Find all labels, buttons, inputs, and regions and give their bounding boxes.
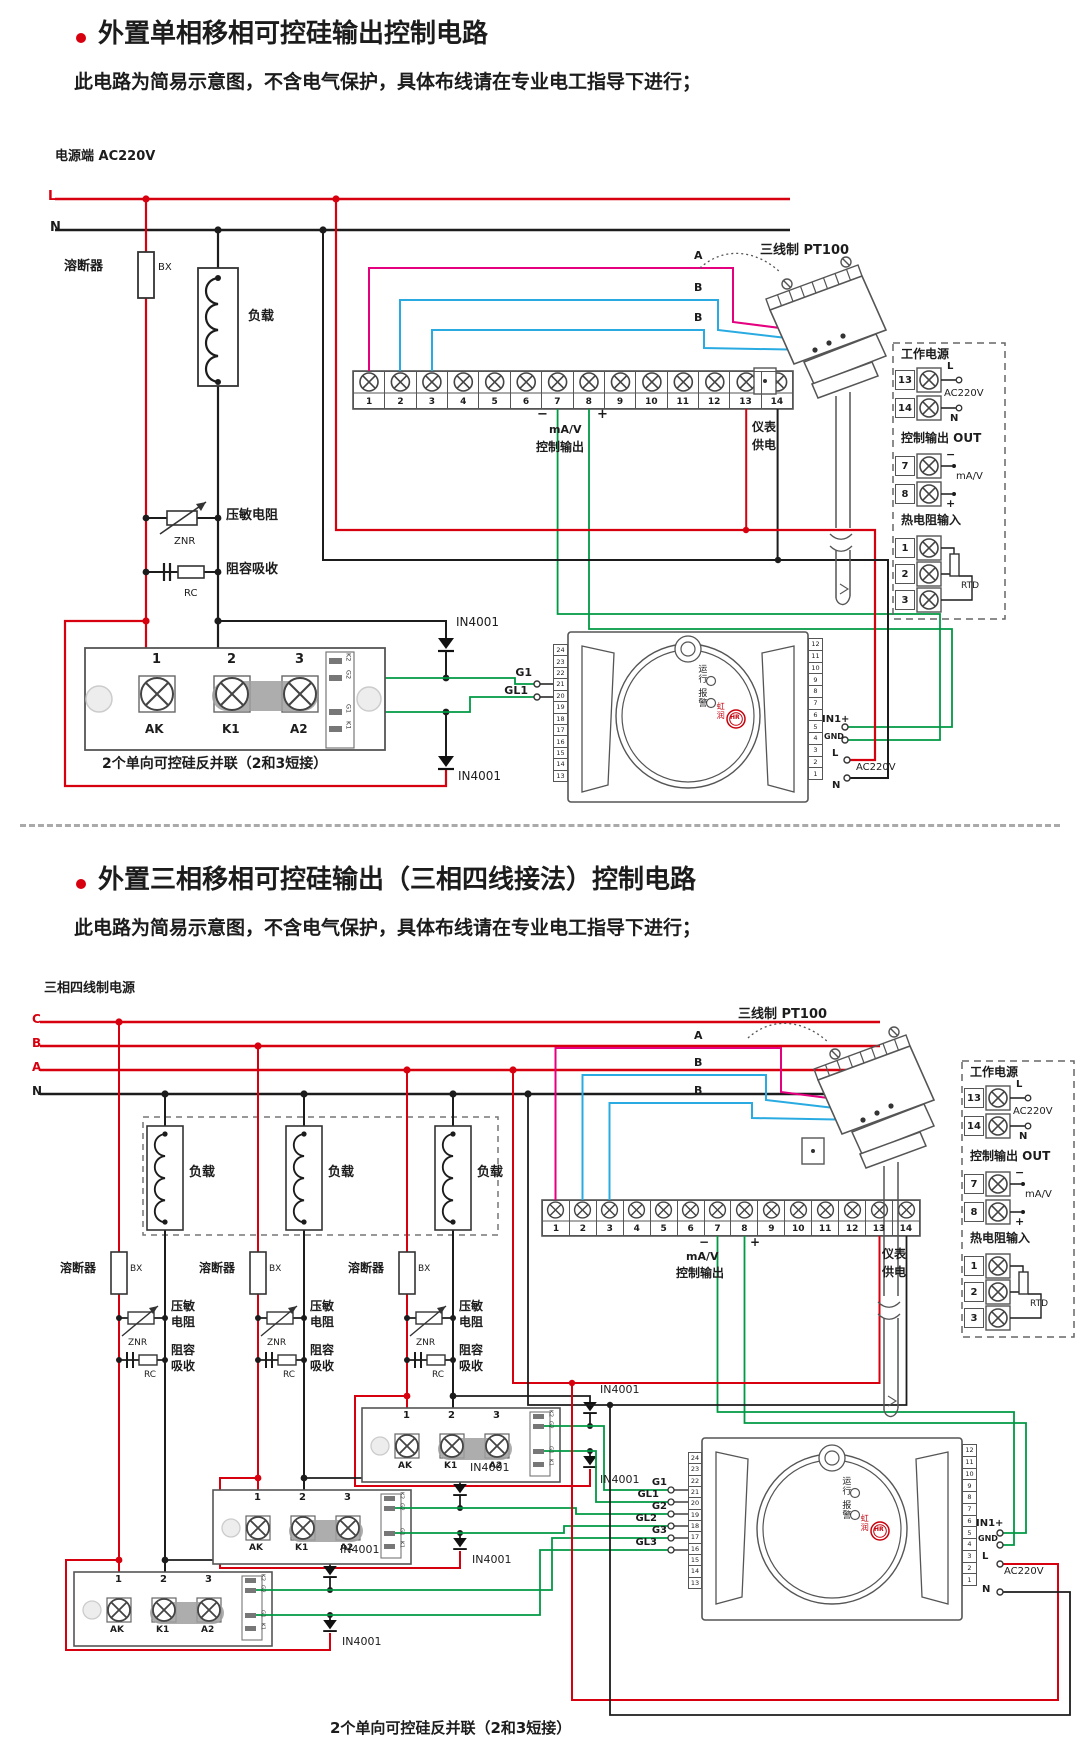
terminal-number: 4 <box>447 372 478 408</box>
load-label: 负载 <box>248 310 274 325</box>
scr1-terminal-1: 1 <box>152 653 161 668</box>
meter2-right-terminals: 121110987654321 <box>962 1444 977 1586</box>
pt100-2-title: 三线制 PT100 <box>738 1008 827 1023</box>
panel2-mav: mA/V <box>1025 1189 1052 1201</box>
scrB-ak: AK <box>249 1543 263 1553</box>
scr1-side-k2: K2 <box>344 653 351 661</box>
znr2-label2a: 压敏 <box>310 1300 334 1314</box>
terminal-number: 8 <box>730 1201 757 1235</box>
terminal-number: 11 <box>667 372 698 408</box>
terminal-strip-1: 1234567891011121314 <box>353 371 793 409</box>
terminal-number: 21 <box>554 678 567 689</box>
strip2-ctrl-output: 控制输出 <box>676 1267 724 1281</box>
scrA-side-k2: K2 <box>547 1410 553 1417</box>
panel1-n7: 7 <box>895 456 915 476</box>
scrA-side-g2: G2 <box>547 1421 553 1429</box>
terminal-number: 20 <box>554 690 567 701</box>
meter1-n-label: N <box>832 780 840 792</box>
varistor-label: 压敏电阻 <box>226 509 278 524</box>
panel1-plus: + <box>946 498 955 511</box>
meter2-gnd-label: GND <box>978 1534 998 1543</box>
scrC-ak: AK <box>110 1625 124 1635</box>
rc2-code-3: RC <box>432 1370 444 1380</box>
terminal-number: 2 <box>384 372 415 408</box>
panel1-ac: AC220V <box>944 388 984 400</box>
terminal-number: 6 <box>809 709 822 721</box>
gate-wire-g1: G1 <box>492 667 532 680</box>
scr2-caption: 2个单向可控硅反并联（2和3短接） <box>330 1720 571 1737</box>
terminal-number: 13 <box>689 1577 701 1588</box>
terminal-number: 6 <box>510 372 541 408</box>
znr2-code-1: ZNR <box>128 1338 147 1348</box>
section2-subtitle: 此电路为简易示意图，不含电气保护，具体布线请在专业电工指导下进行； <box>74 918 701 940</box>
scr1-a2: A2 <box>290 723 308 737</box>
terminal-number: 2 <box>569 1201 596 1235</box>
scrB-terminal-1: 1 <box>254 1492 261 1504</box>
terminal-number: 10 <box>635 372 666 408</box>
scrB-side-k1: K1 <box>398 1541 404 1548</box>
fuse-label: 溶断器 <box>64 260 103 275</box>
meter1-run-label: 运行 <box>696 664 706 684</box>
meter1-left-terminals: 242322212019181716151413 <box>553 644 568 782</box>
gate-gl1: GL1 <box>619 1489 659 1501</box>
meter-supply-label-1: 仪表 <box>752 421 776 435</box>
pt100-title: 三线制 PT100 <box>760 244 849 259</box>
terminal-number: 11 <box>963 1456 976 1468</box>
scrC-side-g2: G2 <box>259 1585 265 1593</box>
scrB-k1: K1 <box>295 1543 308 1553</box>
line-a-label: A <box>32 1061 41 1075</box>
scrB-terminal-3: 3 <box>344 1492 351 1504</box>
pt100-wire-b1: B <box>694 282 702 295</box>
scrB-side-g2: G2 <box>398 1503 404 1511</box>
schematic-page: 外置单相移相可控硅输出控制电路 此电路为简易示意图，不含电气保护，具体布线请在专… <box>0 0 1080 1762</box>
panel2-n2: 2 <box>964 1282 984 1302</box>
scrA-terminal-3: 3 <box>493 1410 500 1422</box>
terminal-number: 18 <box>689 1520 701 1531</box>
diode1-label: IN4001 <box>456 616 499 630</box>
scrA-terminal-2: 2 <box>448 1410 455 1422</box>
terminal-number: 7 <box>704 1201 731 1235</box>
pt100-wire-b2: B <box>694 312 702 325</box>
meter2-alarm-label: 报警 <box>840 1500 850 1520</box>
terminal-number: 15 <box>554 747 567 758</box>
threephase-power-label: 三相四线制电源 <box>44 982 135 997</box>
scrA-terminal-1: 1 <box>403 1410 410 1422</box>
fuse2-label-2: 溶断器 <box>199 1262 235 1276</box>
meter1-ac220v: AC220V <box>856 762 896 774</box>
fuse2-label-1: 溶断器 <box>60 1262 96 1276</box>
scr1-side-k1: K1 <box>344 721 351 729</box>
terminal-number: 9 <box>963 1479 976 1491</box>
terminal-number: 3 <box>596 1201 623 1235</box>
diodeB1-label: IN4001 <box>470 1462 509 1475</box>
power-source-label: 电源端 AC220V <box>55 150 155 165</box>
section-divider <box>20 824 1060 827</box>
scr1-k1: K1 <box>222 723 240 737</box>
terminal-number: 1 <box>354 372 384 408</box>
terminal-number: 6 <box>963 1515 976 1527</box>
terminal-number: 7 <box>963 1503 976 1515</box>
terminal-number: 3 <box>809 744 822 756</box>
znr2-label3b: 电阻 <box>459 1316 483 1330</box>
terminal-number: 5 <box>963 1526 976 1538</box>
meter2-supply-label-1: 仪表 <box>882 1248 906 1262</box>
panel1-l: L <box>947 361 953 373</box>
terminal-number: 12 <box>698 372 729 408</box>
rc2-label3a: 阻容 <box>459 1344 483 1358</box>
strip1-minus: − <box>537 408 548 423</box>
scrC-side-g1: G1 <box>259 1610 265 1618</box>
scrA-side-k1: K1 <box>547 1459 553 1466</box>
diodeC2-label: IN4001 <box>342 1636 381 1649</box>
terminal-number: 24 <box>554 645 567 655</box>
panel2-out-title: 控制输出 OUT <box>970 1150 1050 1164</box>
meter1-in1-label: IN1+ <box>822 714 849 726</box>
scr1-terminal-2: 2 <box>227 653 236 668</box>
meter1-gnd-label: GND <box>824 732 844 741</box>
rc2-label2b: 吸收 <box>310 1360 334 1374</box>
terminal-number: 7 <box>809 697 822 709</box>
terminal-number: 6 <box>677 1201 704 1235</box>
strip1-mav: mA/V <box>549 424 582 437</box>
line-c-label: C <box>32 1013 41 1027</box>
terminal-number: 24 <box>689 1453 701 1463</box>
panel2-ac: AC220V <box>1013 1106 1053 1118</box>
terminal-number: 8 <box>963 1491 976 1503</box>
terminal-strip-2: 1234567891011121314 <box>542 1200 920 1236</box>
scr1-ak: AK <box>145 723 164 737</box>
terminal-number: 4 <box>623 1201 650 1235</box>
terminal-number: 9 <box>604 372 635 408</box>
line-l-label: L <box>48 190 56 205</box>
terminal-number: 1 <box>543 1201 569 1235</box>
panel2-minus: − <box>1015 1167 1024 1180</box>
title-bullet <box>76 33 86 43</box>
panel1-mav: mA/V <box>956 471 983 483</box>
meter-supply-label-2: 供电 <box>752 439 776 453</box>
panel1-n3: 3 <box>895 590 915 610</box>
terminal-number: 14 <box>554 758 567 769</box>
terminal-number: 12 <box>838 1201 865 1235</box>
terminal-number: 14 <box>761 372 792 408</box>
panel2-n14: 14 <box>964 1116 984 1136</box>
panel1-n1: 1 <box>895 538 915 558</box>
terminal-number: 2 <box>963 1562 976 1574</box>
terminal-number: 7 <box>541 372 572 408</box>
meter2-run-label: 运行 <box>840 1476 850 1496</box>
section1-title: 外置单相移相可控硅输出控制电路 <box>98 20 488 50</box>
load2-label-2: 负载 <box>328 1166 354 1181</box>
meter1-l-label: L <box>832 748 838 760</box>
scrC-k1: K1 <box>156 1625 169 1635</box>
gate-g1: G1 <box>627 1477 667 1489</box>
rc2-label1a: 阻容 <box>171 1344 195 1358</box>
terminal-number: 5 <box>650 1201 677 1235</box>
line-n2-label: N <box>32 1085 42 1099</box>
panel2-n7: 7 <box>964 1174 984 1194</box>
znr2-label3a: 压敏 <box>459 1300 483 1314</box>
meter2-logo: HR <box>874 1527 884 1534</box>
panel2-n1: 1 <box>964 1256 984 1276</box>
terminal-number: 9 <box>809 673 822 685</box>
terminal-number: 17 <box>554 724 567 735</box>
pt100-2-wire-a: A <box>694 1030 703 1043</box>
panel1-n2: 2 <box>895 564 915 584</box>
panel2-rtd: RTD <box>1030 1299 1048 1309</box>
znr2-code-3: ZNR <box>416 1338 435 1348</box>
strip2-mav: mA/V <box>686 1251 719 1264</box>
diodeA1-label: IN4001 <box>600 1384 639 1397</box>
section2-title: 外置三相移相可控硅输出（三相四线接法）控制电路 <box>98 866 696 896</box>
panel1-power-title: 工作电源 <box>901 348 949 362</box>
rc-label: 阻容吸收 <box>226 563 278 578</box>
line-b-label: B <box>32 1037 41 1051</box>
scrC-a2: A2 <box>201 1625 214 1635</box>
rc2-label1b: 吸收 <box>171 1360 195 1374</box>
panel1-rtd: RTD <box>961 581 979 591</box>
terminal-number: 14 <box>689 1565 701 1576</box>
terminal-number: 22 <box>689 1475 701 1486</box>
terminal-number: 23 <box>554 655 567 666</box>
scr1-side-g1: G1 <box>344 704 351 713</box>
scr1-terminal-3: 3 <box>295 653 304 668</box>
panel2-plus: + <box>1015 1216 1024 1229</box>
terminal-number: 11 <box>811 1201 838 1235</box>
panel2-n13: 13 <box>964 1088 984 1108</box>
terminal-number: 12 <box>963 1445 976 1456</box>
panel2-power-title: 工作电源 <box>970 1066 1018 1080</box>
fuse2-code-2: BX <box>269 1264 281 1274</box>
scrA-k1: K1 <box>444 1461 457 1471</box>
terminal-number: 1 <box>809 767 822 779</box>
terminal-number: 17 <box>689 1531 701 1542</box>
terminal-number: 18 <box>554 713 567 724</box>
meter1-brand: 虹润 <box>716 702 725 720</box>
scrA-side-g1: G1 <box>547 1446 553 1454</box>
scr1-caption: 2个单向可控硅反并联（2和3短接） <box>102 756 327 772</box>
scrB-side-k2: K2 <box>398 1492 404 1499</box>
meter2-ac220v: AC220V <box>1004 1566 1044 1578</box>
terminal-number: 1 <box>963 1573 976 1585</box>
terminal-number: 14 <box>892 1201 919 1235</box>
terminal-number: 13 <box>729 372 760 408</box>
terminal-number: 8 <box>809 685 822 697</box>
strip1-plus: + <box>597 408 608 423</box>
terminal-number: 9 <box>757 1201 784 1235</box>
meter1-right-terminals: 121110987654321 <box>808 638 823 780</box>
gate-wire-gl1: GL1 <box>488 685 528 698</box>
terminal-number: 15 <box>689 1554 701 1565</box>
strip2-minus: − <box>699 1236 709 1250</box>
rc-code: RC <box>184 588 197 600</box>
fuse2-code-3: BX <box>418 1264 430 1274</box>
meter2-supply-label-2: 供电 <box>882 1266 906 1280</box>
panel2-n: N <box>1019 1131 1027 1143</box>
pt100-2-wire-b1: B <box>694 1057 702 1070</box>
terminal-number: 22 <box>554 667 567 678</box>
scrC-side-k1: K1 <box>259 1623 265 1630</box>
meter1-alarm-label: 报警 <box>696 688 706 708</box>
scrA-ak: AK <box>398 1461 412 1471</box>
rc2-label3b: 吸收 <box>459 1360 483 1374</box>
meter2-brand: 虹润 <box>860 1514 869 1532</box>
terminal-number: 16 <box>554 735 567 746</box>
section1-subtitle: 此电路为简易示意图，不含电气保护，具体布线请在专业电工指导下进行； <box>74 72 701 94</box>
pt100-2-wire-b2: B <box>694 1085 702 1098</box>
diodeC1-label: IN4001 <box>340 1544 379 1557</box>
terminal-number: 8 <box>573 372 604 408</box>
load2-label-1: 负载 <box>189 1166 215 1181</box>
scrB-terminal-2: 2 <box>299 1492 306 1504</box>
panel2-l: L <box>1016 1079 1022 1091</box>
gate-g3: G3 <box>627 1525 667 1537</box>
panel1-n: N <box>950 413 958 425</box>
scrC-terminal-1: 1 <box>115 1574 122 1586</box>
strip1-ctrl-output: 控制输出 <box>536 441 584 455</box>
terminal-number: 19 <box>689 1509 701 1520</box>
rc2-code-1: RC <box>144 1370 156 1380</box>
terminal-number: 23 <box>689 1463 701 1474</box>
terminal-number: 10 <box>963 1468 976 1480</box>
scr1-side-g2: G2 <box>344 670 351 679</box>
terminal-number: 11 <box>809 650 822 662</box>
rc2-code-2: RC <box>283 1370 295 1380</box>
panel1-n14: 14 <box>895 398 915 418</box>
fuse-code: BX <box>158 262 172 274</box>
terminal-number: 21 <box>689 1486 701 1497</box>
panel1-rtd-title: 热电阻输入 <box>901 514 961 528</box>
panel2-n8: 8 <box>964 1202 984 1222</box>
panel1-n8: 8 <box>895 484 915 504</box>
load2-label-3: 负载 <box>477 1166 503 1181</box>
panel1-n13: 13 <box>895 370 915 390</box>
terminal-number: 10 <box>784 1201 811 1235</box>
znr2-code-2: ZNR <box>267 1338 286 1348</box>
line-n-label: N <box>50 221 61 236</box>
scrC-terminal-2: 2 <box>160 1574 167 1586</box>
terminal-number: 10 <box>809 662 822 674</box>
terminal-number: 12 <box>809 639 822 650</box>
terminal-number: 3 <box>963 1550 976 1562</box>
znr2-label1a: 压敏 <box>171 1300 195 1314</box>
rc2-label2a: 阻容 <box>310 1344 334 1358</box>
znr2-label1b: 电阻 <box>171 1316 195 1330</box>
terminal-number: 20 <box>689 1497 701 1508</box>
terminal-number: 16 <box>689 1543 701 1554</box>
fuse2-code-1: BX <box>130 1264 142 1274</box>
terminal-number: 19 <box>554 701 567 712</box>
meter1-logo: HR <box>730 715 740 722</box>
gate-g2: G2 <box>627 1501 667 1513</box>
diodeB2-label: IN4001 <box>472 1554 511 1567</box>
panel2-rtd-title: 热电阻输入 <box>970 1232 1030 1246</box>
gate-gl2: GL2 <box>617 1513 657 1525</box>
terminal-number: 5 <box>478 372 509 408</box>
varistor-code: ZNR <box>174 536 195 548</box>
panel1-out-title: 控制输出 OUT <box>901 432 981 446</box>
pt100-wire-a: A <box>694 250 703 263</box>
fuse2-label-3: 溶断器 <box>348 1262 384 1276</box>
meter2-in1-label: IN1+ <box>976 1518 1003 1530</box>
meter2-n-label: N <box>982 1584 990 1596</box>
gate-gl3: GL3 <box>617 1537 657 1549</box>
title-bullet-2 <box>76 879 86 889</box>
terminal-number: 13 <box>865 1201 892 1235</box>
terminal-number: 3 <box>416 372 447 408</box>
znr2-label2b: 电阻 <box>310 1316 334 1330</box>
meter2-l-label: L <box>982 1551 988 1563</box>
meter2-left-terminals: 242322212019181716151413 <box>688 1452 702 1589</box>
scrB-side-g1: G1 <box>398 1528 404 1536</box>
diode2-label: IN4001 <box>458 770 501 784</box>
scrC-terminal-3: 3 <box>205 1574 212 1586</box>
terminal-number: 2 <box>809 756 822 768</box>
terminal-number: 5 <box>809 720 822 732</box>
panel1-minus: − <box>946 449 955 462</box>
terminal-number: 13 <box>554 770 567 781</box>
terminal-number: 4 <box>809 732 822 744</box>
panel2-n3: 3 <box>964 1308 984 1328</box>
strip2-plus: + <box>750 1236 760 1250</box>
terminal-number: 4 <box>963 1538 976 1550</box>
scrC-side-k2: K2 <box>259 1574 265 1581</box>
